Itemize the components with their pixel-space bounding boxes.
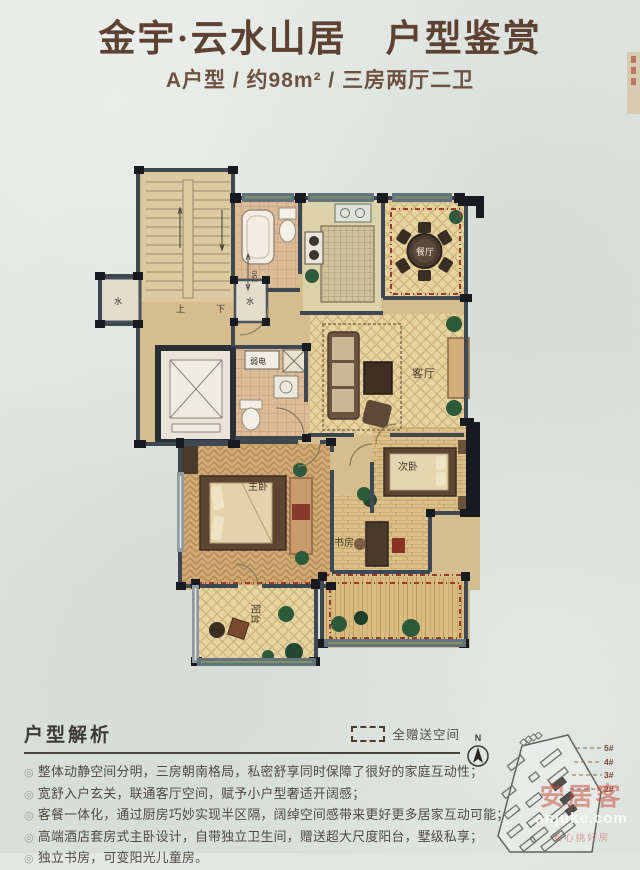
building-label: 2# — [604, 784, 614, 794]
plant-icon — [278, 606, 294, 622]
analysis-bullet: ◎整体动静空间分明，三房朝南格局，私密舒享同时保障了很好的家庭互动性； — [24, 762, 494, 784]
page-subtitle: A户型 / 约98m² / 三房两厅二卫 — [0, 64, 640, 94]
living-label: 客厅 — [412, 366, 436, 380]
plant-icon — [295, 551, 309, 565]
analysis-bullet: ◎宽舒入户玄关，联通客厅空间，赋予小户型奢适开阔感； — [24, 784, 494, 806]
second-bedroom-label: 次卧 — [398, 460, 418, 473]
gift-space-legend-icon — [351, 726, 385, 742]
stair-up-label: 上 — [176, 304, 185, 314]
skylight-box — [283, 350, 305, 372]
compass-north-label: N — [464, 734, 492, 743]
kitchen-counter — [321, 226, 374, 302]
analysis-section: 户型解析 全赠送空间 ◎整体动静空间分明，三房朝南格局，私密舒享同时保障了很好的… — [24, 720, 494, 870]
plant-icon — [331, 616, 347, 632]
desk-chair — [354, 538, 366, 550]
building-label: 3# — [604, 770, 614, 780]
dimension-label: 750 — [250, 270, 259, 283]
plant-icon — [446, 316, 462, 332]
water-niche-right: 水 — [235, 280, 267, 322]
heading-divider — [24, 752, 460, 754]
stove-icon — [305, 232, 323, 264]
master-label: 主卧 — [248, 480, 268, 493]
toilet-icon-2 — [240, 400, 262, 430]
building-label: 5# — [604, 743, 614, 753]
plant-icon — [357, 487, 371, 501]
compass: N — [464, 734, 492, 774]
water-label: 水 — [114, 296, 122, 306]
study-label: 书房 — [334, 536, 354, 549]
plant-icon — [354, 611, 368, 625]
toilet-icon — [279, 208, 296, 242]
plant-icon — [305, 269, 319, 283]
bathtub-icon — [242, 210, 274, 264]
building-label: 4# — [604, 757, 614, 767]
coffee-table — [364, 362, 392, 394]
elevator — [158, 348, 233, 442]
analysis-heading: 户型解析 — [24, 720, 112, 747]
stair-down-label: 下 — [216, 304, 225, 314]
water-niche-left: 水 — [100, 278, 140, 322]
weak-power-box: 弱电 — [245, 351, 279, 369]
floor-plan: 上 下 水 水 弱电 — [52, 152, 532, 714]
analysis-bullet-list: ◎整体动静空间分明，三房朝南格局，私密舒享同时保障了很好的家庭互动性； ◎宽舒入… — [24, 762, 494, 870]
desk — [366, 522, 388, 566]
weak-power-label: 弱电 — [250, 356, 266, 366]
plant-icon — [446, 400, 462, 416]
round-table — [209, 622, 225, 638]
gift-space-legend: 全赠送空间 — [351, 724, 460, 743]
bullet-icon: ◎ — [24, 832, 34, 844]
red-stool — [392, 538, 405, 553]
analysis-bullet: ◎高端酒店套房式主卧设计，自带独立卫生间，赠送超大尺度阳台，墅级私享； — [24, 827, 494, 849]
plant-icon — [402, 619, 420, 637]
site-plan: 5# 4# 3# 2# — [490, 732, 640, 853]
bullet-icon: ◎ — [24, 767, 34, 779]
kitchen-sink-icon — [335, 204, 371, 222]
gift-space-legend-label: 全赠送空间 — [392, 724, 460, 743]
terrace-floor — [324, 577, 468, 646]
dining-label: 餐厅 — [416, 246, 434, 257]
bullet-icon: ◎ — [24, 853, 34, 865]
water-label: 水 — [246, 296, 254, 306]
analysis-bullet: ◎客餐一体化，通过厨房巧妙实现半区隔，阔绰空间感带来更好更多居家互动可能； — [24, 805, 494, 827]
sink-icon — [274, 376, 298, 398]
site-boundary — [498, 735, 601, 852]
page-title: 金宇·云水山居 户型鉴赏 — [0, 8, 640, 62]
bullet-icon: ◎ — [24, 789, 34, 801]
balcony-label: 阳台 — [249, 604, 262, 624]
bullet-icon: ◎ — [24, 810, 34, 822]
compass-icon — [465, 743, 491, 769]
page-edge-artifact — [627, 52, 640, 114]
analysis-bullet: ◎独立书房，可变阳光儿童房。 — [24, 848, 494, 870]
site-building-labels: 5# 4# 3# 2# — [604, 743, 614, 794]
